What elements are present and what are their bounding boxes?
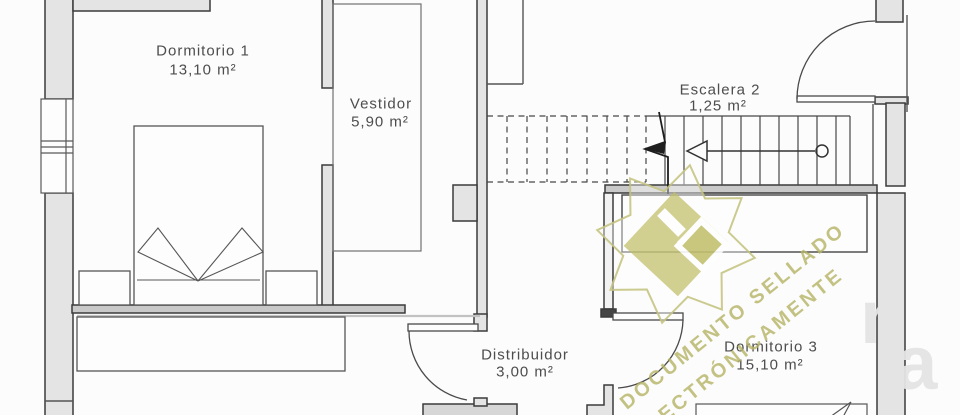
room-label-distribuidor-area: 3,00 m²	[496, 364, 554, 381]
wardrobe-lower-room	[77, 317, 345, 371]
floor-plan-canvas: Dormitorio 1 13,10 m² Vestidor 5,90 m² E…	[0, 0, 960, 415]
wall-partition-vestidor-top	[322, 0, 333, 88]
bed-dormitorio-3-icon	[696, 402, 867, 415]
wall-central-protrusion	[453, 185, 477, 221]
wall-right-top-stub	[876, 0, 903, 22]
door-arc-distribuidor	[409, 331, 467, 400]
stair-arrow-start-circle	[816, 145, 828, 157]
bed-dormitorio-1-icon	[134, 126, 263, 305]
stair-direction-arrow	[687, 141, 828, 161]
door-leaf-distribuidor	[408, 324, 478, 331]
wall-left-bottom	[45, 193, 73, 415]
room-label-vestidor-name: Vestidor	[350, 96, 412, 113]
wall-right-stair-side	[886, 103, 905, 186]
wall-partition-vestidor-bottom	[322, 165, 333, 306]
stairwell-closet-corner	[487, 0, 523, 84]
nightstand-left	[79, 271, 130, 305]
wall-left-top	[45, 0, 73, 99]
wall-central	[477, 0, 487, 317]
stair-treads-dashed	[487, 116, 646, 182]
door-distribuidor	[408, 324, 478, 400]
wall-stub-dormitorio-3-bottom	[587, 385, 613, 415]
bed-outline	[134, 126, 263, 305]
stair-arrow-head	[687, 141, 707, 161]
window-frame	[41, 99, 73, 193]
door-leaf-top-right	[797, 96, 875, 102]
room-label-dormitorio-1-area: 13,10 m²	[169, 62, 236, 79]
door-arc-top-right	[797, 21, 875, 99]
wall-left-dormitorio-3	[604, 193, 613, 309]
door-frame-bottom	[474, 398, 487, 406]
wall-bottom-dormitorio-1	[72, 305, 405, 313]
room-label-distribuidor-name: Distribuidor	[481, 347, 569, 364]
window-left-icon	[41, 99, 73, 193]
room-label-dormitorio-1-name: Dormitorio 1	[156, 43, 250, 60]
door-leaf-dormitorio-3	[613, 313, 683, 320]
wall-bottom-edge	[423, 404, 517, 415]
room-label-escalera-2-name: Escalera 2	[680, 82, 761, 99]
room-label-vestidor-area: 5,90 m²	[351, 114, 409, 131]
room-label-escalera-2-area: 1,25 m²	[689, 98, 747, 115]
nightstand-right	[266, 271, 317, 305]
wall-top-dormitorio-1	[73, 0, 210, 11]
partial-watermark-ia: ia	[874, 326, 937, 402]
door-top-right	[797, 21, 875, 102]
escalera-stairs	[487, 112, 850, 194]
